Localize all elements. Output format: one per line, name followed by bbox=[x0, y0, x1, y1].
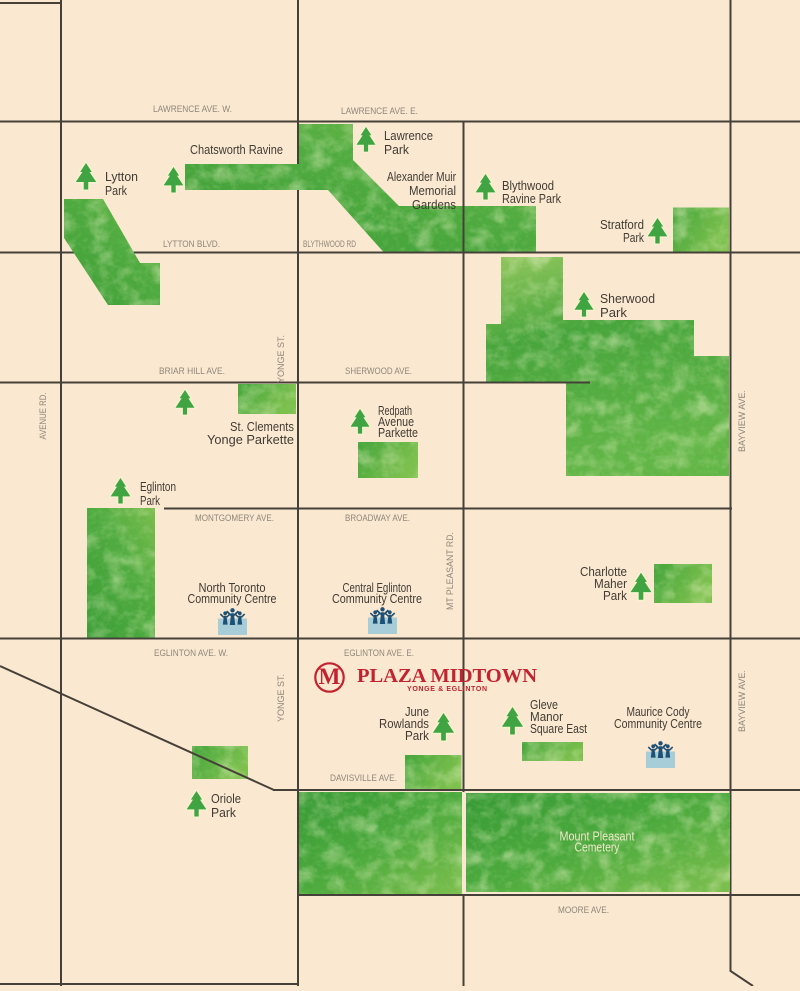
svg-text:SHERWOOD AVE.: SHERWOOD AVE. bbox=[345, 366, 412, 377]
svg-text:YONGE & EGLINTON: YONGE & EGLINTON bbox=[407, 686, 487, 693]
svg-text:Chatsworth Ravine: Chatsworth Ravine bbox=[190, 142, 283, 157]
svg-text:EGLINTON AVE. W.: EGLINTON AVE. W. bbox=[154, 648, 228, 659]
svg-text:BAYVIEW AVE.: BAYVIEW AVE. bbox=[737, 670, 748, 732]
svg-text:DAVISVILLE AVE.: DAVISVILLE AVE. bbox=[330, 773, 397, 784]
svg-text:MONTGOMERY AVE.: MONTGOMERY AVE. bbox=[195, 513, 274, 524]
svg-text:M: M bbox=[319, 664, 341, 689]
svg-text:BlythwoodRavine Park: BlythwoodRavine Park bbox=[502, 178, 561, 206]
svg-text:BROADWAY AVE.: BROADWAY AVE. bbox=[345, 513, 410, 524]
svg-text:BAYVIEW AVE.: BAYVIEW AVE. bbox=[737, 390, 748, 452]
svg-text:YONGE ST.: YONGE ST. bbox=[276, 335, 287, 383]
svg-text:MT PLEASANT RD.: MT PLEASANT RD. bbox=[445, 532, 456, 610]
svg-text:MOORE AVE.: MOORE AVE. bbox=[558, 905, 609, 916]
svg-text:BRIAR HILL AVE.: BRIAR HILL AVE. bbox=[159, 366, 225, 377]
svg-text:North TorontoCommunity Centre: North TorontoCommunity Centre bbox=[188, 580, 277, 606]
svg-text:Central EglintonCommunity Cent: Central EglintonCommunity Centre bbox=[332, 580, 422, 606]
svg-text:LAWRENCE AVE. W.: LAWRENCE AVE. W. bbox=[153, 104, 232, 115]
svg-text:YONGE ST.: YONGE ST. bbox=[276, 674, 287, 722]
svg-text:Maurice CodyCommunity Centre: Maurice CodyCommunity Centre bbox=[614, 704, 702, 731]
svg-text:EGLINTON AVE. E.: EGLINTON AVE. E. bbox=[344, 648, 414, 659]
svg-text:PLAZA MIDTOWN: PLAZA MIDTOWN bbox=[357, 665, 537, 687]
svg-text:AVENUE RD.: AVENUE RD. bbox=[38, 393, 49, 440]
svg-text:BLYTHWOOD RD: BLYTHWOOD RD bbox=[303, 239, 356, 250]
svg-text:LYTTON BLVD.: LYTTON BLVD. bbox=[163, 239, 220, 250]
svg-text:LAWRENCE AVE. E.: LAWRENCE AVE. E. bbox=[341, 106, 418, 117]
